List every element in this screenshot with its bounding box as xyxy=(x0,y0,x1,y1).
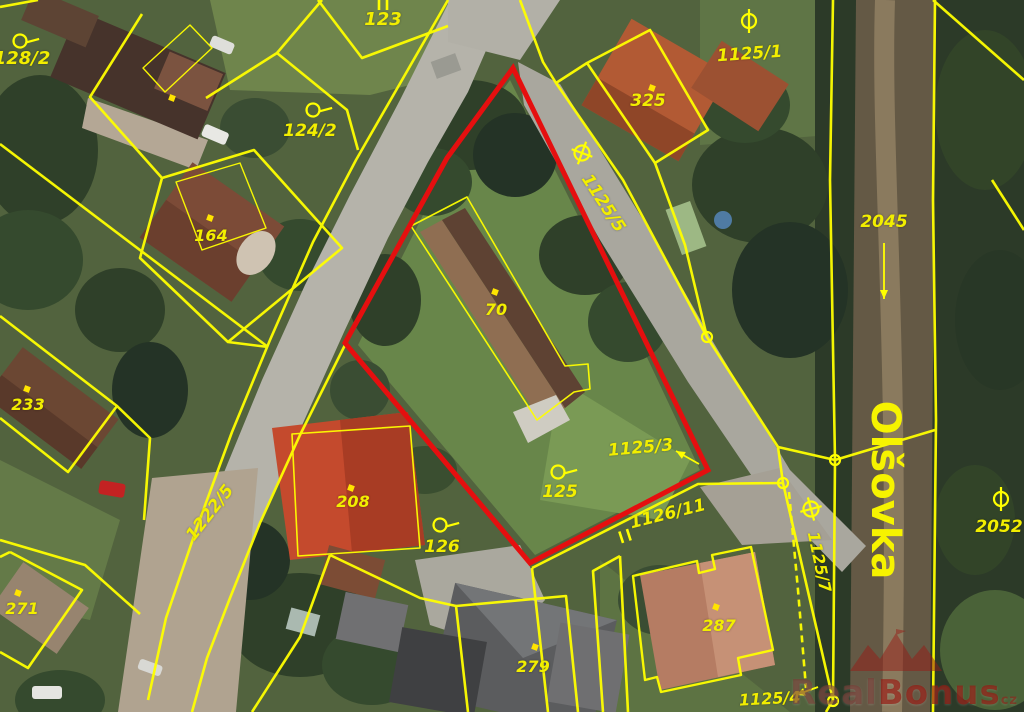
aerial-map[interactable]: 128/2123124/23251125/11125/5204570164233… xyxy=(0,0,1024,712)
pool xyxy=(714,211,732,229)
map-terrain xyxy=(0,0,1024,712)
dirt-corridor xyxy=(850,0,936,712)
building-287 xyxy=(640,552,775,690)
